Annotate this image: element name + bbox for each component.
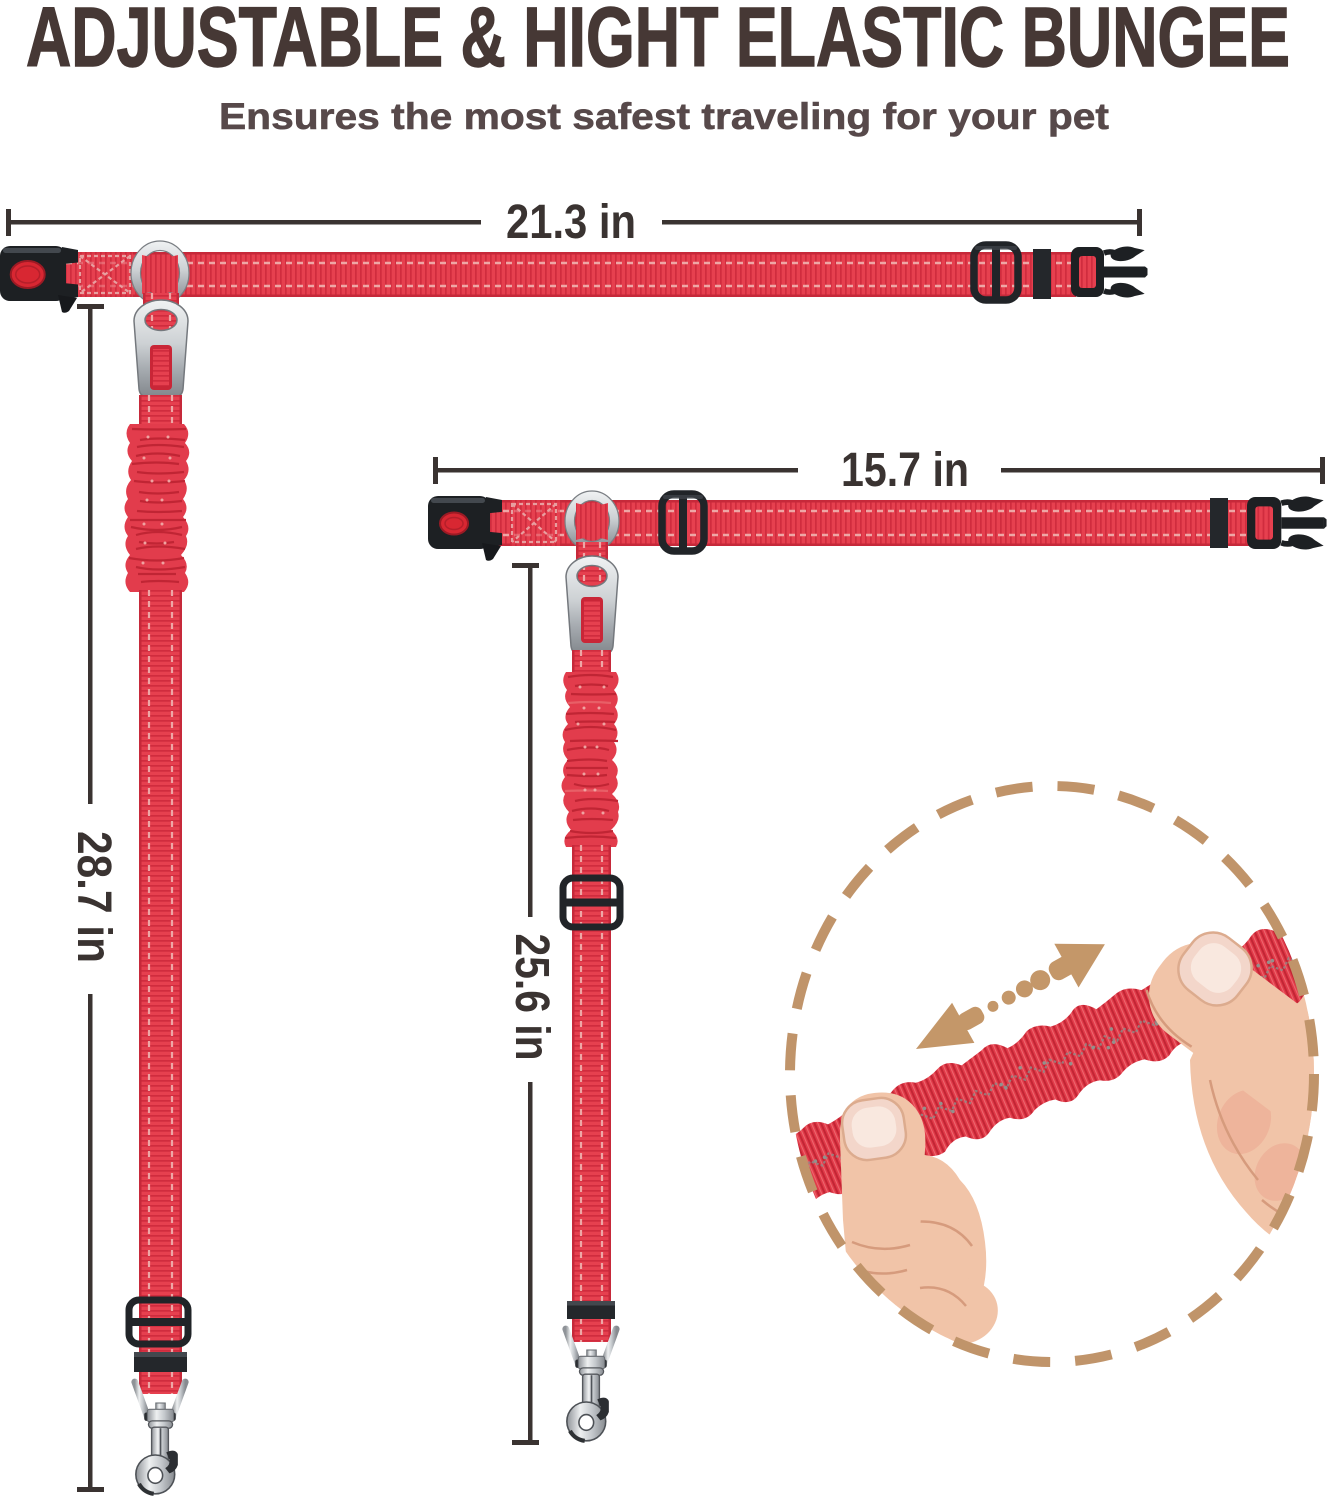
svg-text:ADJUSTABLE & HIGHT ELASTIC BUN: ADJUSTABLE & HIGHT ELASTIC BUNGEE (26, 0, 1290, 84)
svg-text:15.7 in: 15.7 in (841, 444, 969, 497)
svg-text:28.7 in: 28.7 in (67, 831, 120, 963)
svg-text:Ensures the most safest travel: Ensures the most safest traveling for yo… (219, 96, 1109, 137)
svg-text:25.6 in: 25.6 in (505, 934, 558, 1061)
svg-text:21.3 in: 21.3 in (506, 196, 636, 249)
